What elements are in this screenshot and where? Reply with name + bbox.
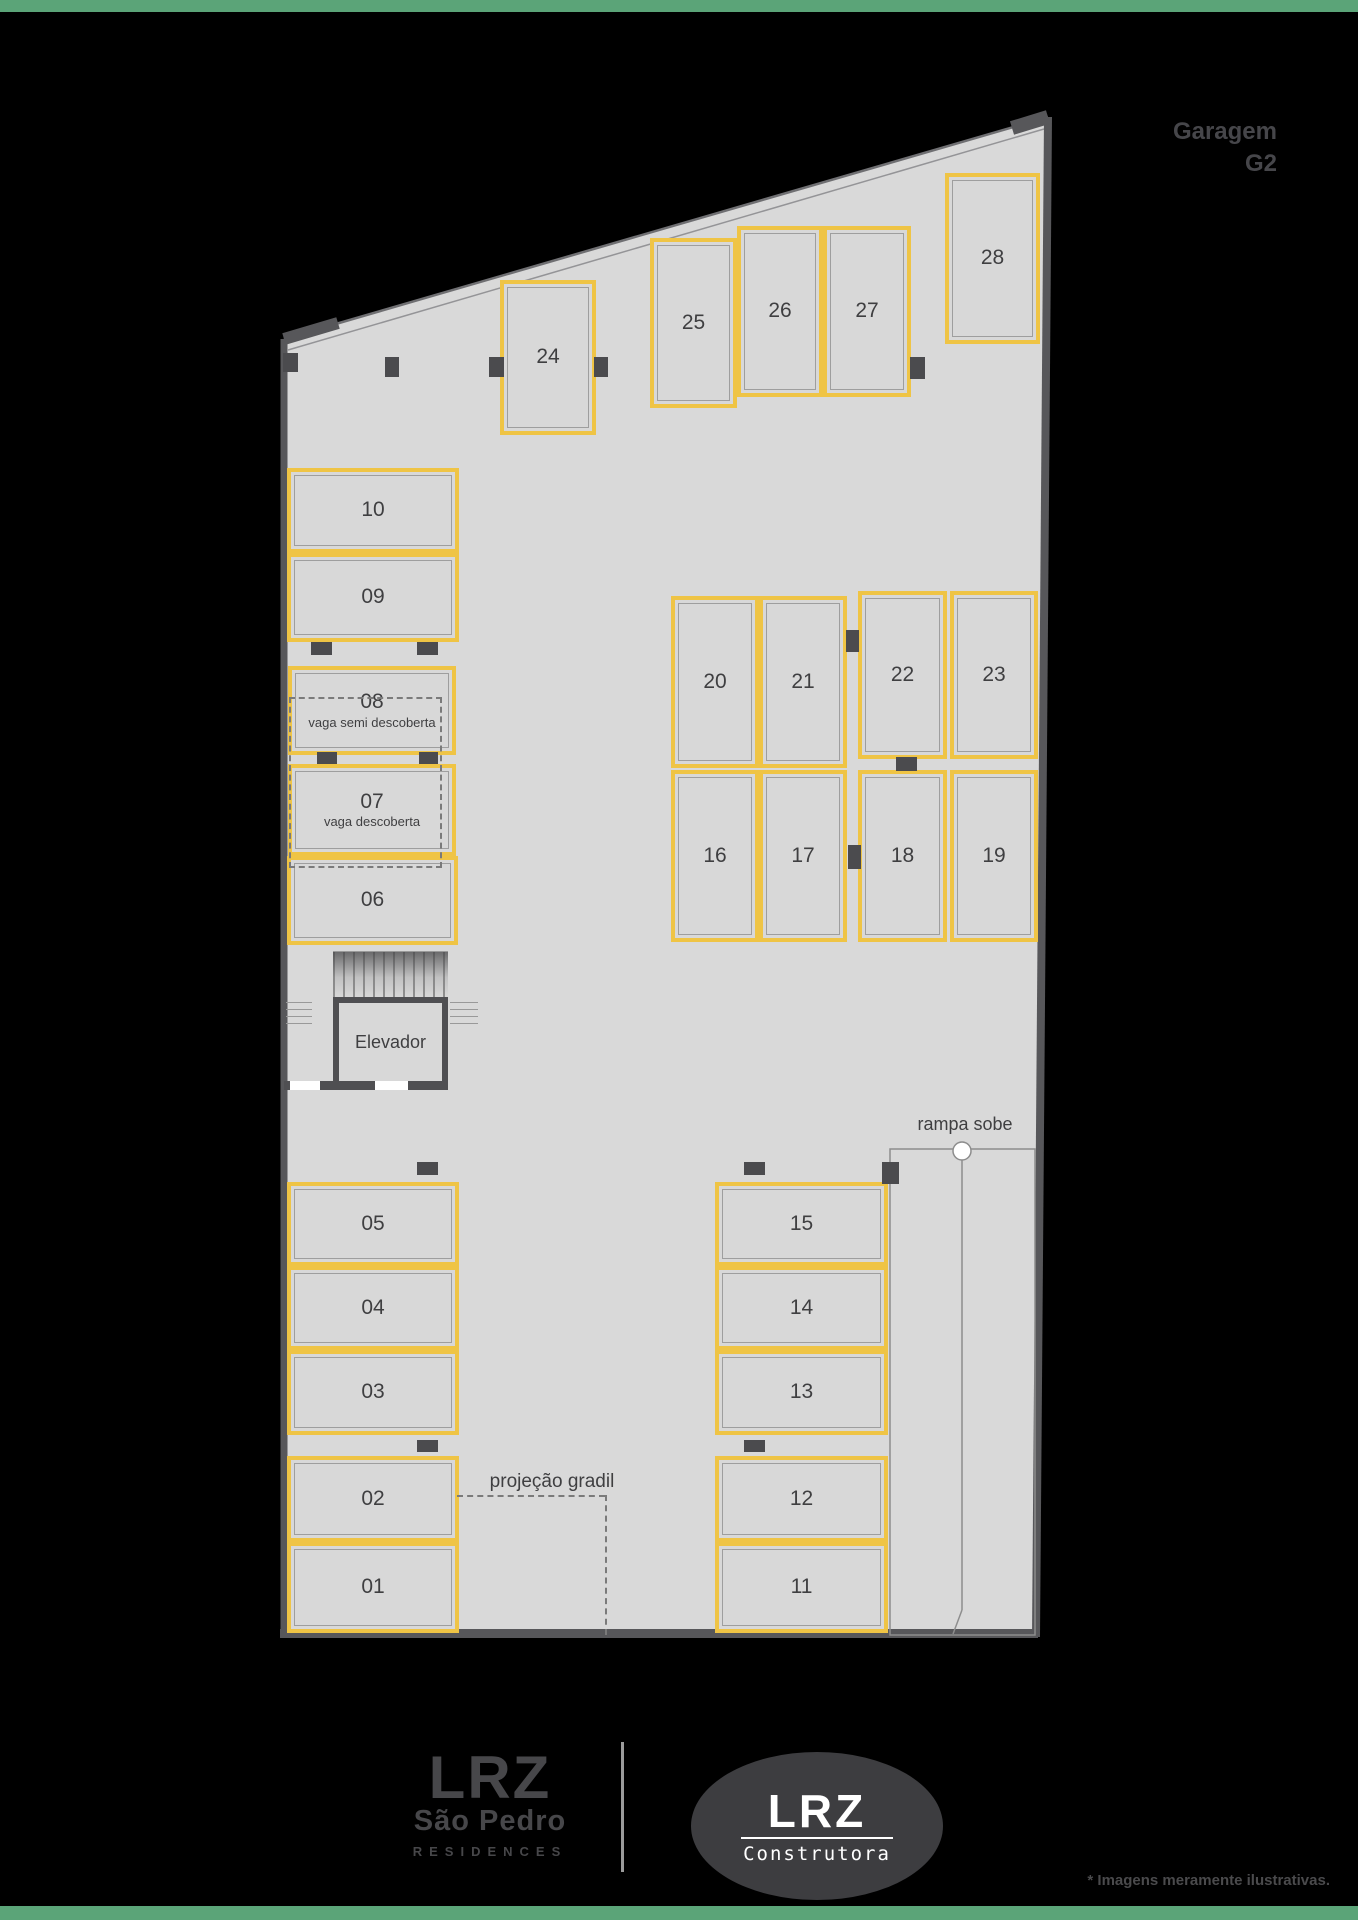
space-label: 28: [981, 246, 1004, 270]
garage-floor-plan-page: Garagem G2 Elevador 10 09 08 vaga semi d…: [0, 0, 1358, 1920]
logo-rule: [741, 1837, 893, 1839]
space-label: 12: [790, 1487, 813, 1511]
parking-space-16: 16: [671, 770, 759, 942]
elevator-room: Elevador: [333, 997, 448, 1088]
space-label: 19: [982, 844, 1005, 868]
page-title-level: G2: [1173, 148, 1277, 180]
space-label: 18: [891, 844, 914, 868]
parking-space-02: 02: [287, 1456, 459, 1542]
parking-space-20: 20: [671, 596, 759, 768]
space-label: 02: [361, 1487, 384, 1511]
parking-space-24: 24: [500, 280, 596, 435]
parking-space-25: 25: [650, 238, 737, 408]
column: [311, 642, 332, 655]
parking-space-01: 01: [287, 1542, 459, 1633]
logo-lrz-text: LRZ: [365, 1752, 615, 1803]
parking-space-09: 09: [287, 553, 459, 642]
column: [283, 353, 298, 372]
logo-sao-pedro-text: São Pedro: [365, 1805, 615, 1838]
parking-space-15: 15: [715, 1182, 888, 1266]
page-title: Garagem G2: [1173, 116, 1277, 181]
door-gap-left: [290, 1081, 320, 1090]
parking-space-23: 23: [950, 591, 1038, 759]
stairs: [333, 951, 448, 998]
column: [489, 357, 504, 377]
parking-space-27: 27: [823, 226, 911, 397]
space-label: 14: [790, 1296, 813, 1320]
column: [848, 845, 861, 869]
space-label: 15: [790, 1212, 813, 1236]
lrz-sao-pedro-logo: LRZ São Pedro RESIDENCES: [365, 1752, 615, 1859]
parking-space-19: 19: [950, 770, 1038, 942]
parking-space-12: 12: [715, 1456, 888, 1542]
column: [882, 1162, 899, 1184]
space-label: 03: [361, 1380, 384, 1404]
parking-space-17: 17: [759, 770, 847, 942]
space-label: 26: [768, 299, 791, 323]
space-label: 13: [790, 1380, 813, 1404]
parking-space-18: 18: [858, 770, 947, 942]
parking-space-22: 22: [858, 591, 947, 759]
ramp-label: rampa sobe: [890, 1114, 1040, 1135]
column: [910, 357, 925, 379]
wall-hatch-left: [286, 996, 312, 1024]
logo-construtora-lrz-text: LRZ: [768, 1788, 866, 1834]
space-label: 24: [536, 345, 559, 369]
space-label: 10: [361, 498, 384, 522]
gradil-projection-line-horizontal: [457, 1495, 605, 1497]
page-title-garagem: Garagem: [1173, 116, 1277, 148]
wall-hatch-right: [450, 996, 478, 1024]
space-label: 16: [703, 844, 726, 868]
space-label: 22: [891, 663, 914, 687]
column: [744, 1440, 765, 1452]
ramp-pivot-circle: [953, 1142, 971, 1160]
lrz-construtora-logo: LRZ Construtora: [691, 1752, 943, 1900]
parking-space-06: 06: [287, 856, 458, 945]
column: [846, 630, 859, 652]
gradil-projection-line-vertical: [605, 1495, 607, 1635]
space-label: 20: [703, 670, 726, 694]
space-label: 09: [361, 585, 384, 609]
column: [417, 1162, 438, 1175]
gradil-label: projeção gradil: [452, 1471, 652, 1493]
space-label: 25: [682, 311, 705, 335]
parking-space-04: 04: [287, 1266, 459, 1350]
footer-divider: [621, 1742, 624, 1872]
logo-residences-text: RESIDENCES: [365, 1844, 615, 1859]
column: [385, 357, 399, 377]
disclaimer-text: * Imagens meramente ilustrativas.: [1087, 1872, 1330, 1889]
parking-space-21: 21: [759, 596, 847, 768]
bottom-green-bar: [0, 1906, 1358, 1920]
space-label: 04: [361, 1296, 384, 1320]
door-gap-right: [375, 1081, 408, 1090]
column: [896, 757, 917, 771]
space-label: 21: [791, 670, 814, 694]
parking-space-26: 26: [737, 226, 823, 397]
space-label: 06: [361, 888, 384, 912]
space-label: 05: [361, 1212, 384, 1236]
parking-space-10: 10: [287, 468, 459, 553]
space-label: 27: [855, 299, 878, 323]
space-label: 11: [791, 1575, 813, 1599]
parking-space-05: 05: [287, 1182, 459, 1266]
top-green-bar: [0, 0, 1358, 12]
space-label: 01: [361, 1575, 384, 1599]
elevator-label: Elevador: [355, 1032, 426, 1053]
space-label: 17: [791, 844, 814, 868]
parking-space-03: 03: [287, 1350, 459, 1435]
uncovered-area-dashed-outline: [289, 697, 442, 868]
column: [744, 1162, 765, 1175]
column: [594, 357, 608, 377]
column: [417, 642, 438, 655]
logo-construtora-text: Construtora: [743, 1843, 891, 1865]
column: [417, 1440, 438, 1452]
space-label: 23: [982, 663, 1005, 687]
parking-space-13: 13: [715, 1350, 888, 1435]
parking-space-14: 14: [715, 1266, 888, 1350]
parking-space-28: 28: [945, 173, 1040, 344]
parking-space-11: 11: [715, 1542, 888, 1633]
